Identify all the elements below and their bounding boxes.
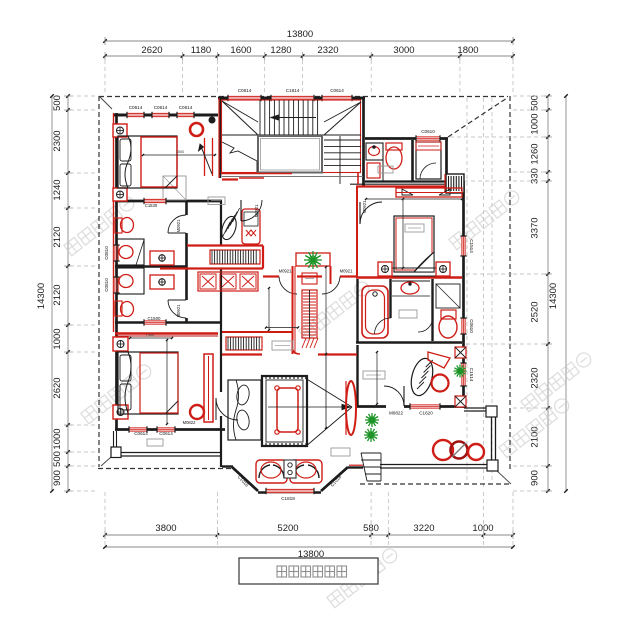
svg-text:2320: 2320 <box>530 367 541 388</box>
svg-text:C1514: C1514 <box>469 368 474 382</box>
svg-text:1180: 1180 <box>191 45 211 56</box>
svg-text:1240: 1240 <box>52 179 63 200</box>
svg-text:2120: 2120 <box>52 284 63 305</box>
svg-text:M0921: M0921 <box>279 269 292 274</box>
svg-text:2320: 2320 <box>317 45 338 56</box>
svg-text:M0822: M0822 <box>183 420 196 425</box>
svg-text:14300: 14300 <box>548 283 559 309</box>
svg-text:500: 500 <box>530 95 541 111</box>
svg-text:1500: 1500 <box>146 334 154 338</box>
svg-text:M0921: M0921 <box>254 204 259 217</box>
svg-text:2120: 2120 <box>52 226 63 247</box>
svg-text:C0614: C0614 <box>179 105 193 110</box>
svg-text:C1500: C1500 <box>148 316 161 321</box>
svg-text:C0614: C0614 <box>129 105 143 110</box>
svg-text:C1530: C1530 <box>145 203 158 208</box>
svg-text:C1818: C1818 <box>281 496 295 501</box>
svg-text:3800: 3800 <box>155 523 176 534</box>
svg-text:1000: 1000 <box>52 328 63 349</box>
svg-text:1800: 1800 <box>457 45 478 56</box>
svg-text:2620: 2620 <box>141 45 162 56</box>
svg-text:M0822: M0822 <box>389 411 403 416</box>
svg-text:13800: 13800 <box>287 29 313 40</box>
svg-text:M0921: M0921 <box>176 219 181 232</box>
svg-text:1000: 1000 <box>530 113 541 134</box>
svg-text:14300: 14300 <box>36 283 47 309</box>
svg-text:M0921: M0921 <box>362 200 367 213</box>
svg-text:3000: 3000 <box>393 45 414 56</box>
svg-text:1000: 1000 <box>472 523 493 534</box>
svg-text:C0810: C0810 <box>104 278 109 292</box>
svg-text:500: 500 <box>52 451 63 467</box>
svg-text:5200: 5200 <box>277 523 298 534</box>
svg-text:C0614: C0614 <box>134 431 148 436</box>
svg-text:500: 500 <box>52 95 63 111</box>
svg-text:C0614: C0614 <box>159 431 173 436</box>
svg-text:1500: 1500 <box>176 150 184 154</box>
svg-text:C0810: C0810 <box>104 246 109 260</box>
svg-text:C1514: C1514 <box>469 239 474 253</box>
svg-text:1000: 1000 <box>52 428 63 449</box>
svg-text:330: 330 <box>530 168 541 184</box>
svg-text:900: 900 <box>530 470 541 486</box>
svg-text:C0610: C0610 <box>469 319 474 333</box>
svg-text:3220: 3220 <box>413 523 434 534</box>
svg-text:M0921: M0921 <box>176 304 181 317</box>
svg-text:1260: 1260 <box>530 143 541 164</box>
svg-text:2620: 2620 <box>52 377 63 398</box>
svg-text:2300: 2300 <box>52 130 63 151</box>
svg-text:M0921: M0921 <box>340 269 353 274</box>
svg-text:1600: 1600 <box>230 45 251 56</box>
svg-text:C1814: C1814 <box>286 88 300 93</box>
svg-text:1280: 1280 <box>270 45 291 56</box>
svg-text:2520: 2520 <box>530 301 541 322</box>
svg-text:C0614: C0614 <box>154 105 168 110</box>
svg-text:3370: 3370 <box>530 217 541 238</box>
svg-text:C0614: C0614 <box>238 88 252 93</box>
svg-text:C0610: C0610 <box>421 129 435 134</box>
svg-text:C1620: C1620 <box>419 411 433 416</box>
svg-text:C0614: C0614 <box>330 88 344 93</box>
svg-text:900: 900 <box>52 470 63 486</box>
